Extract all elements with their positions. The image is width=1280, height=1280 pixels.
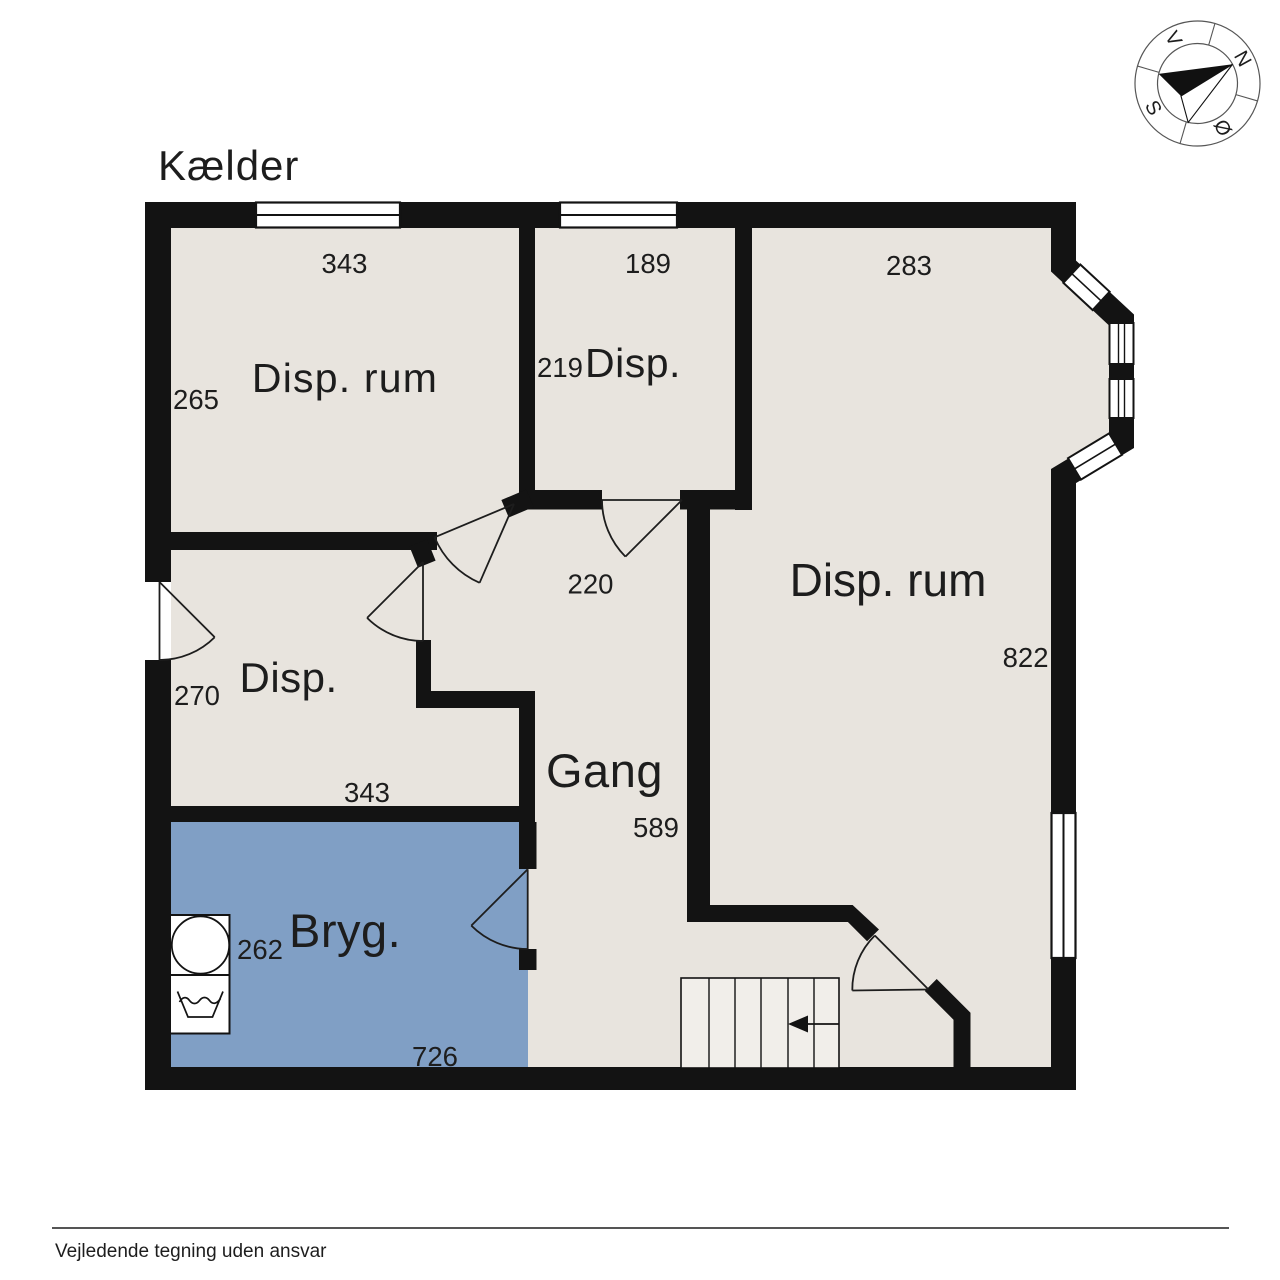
- svg-text:262: 262: [237, 934, 283, 965]
- svg-text:Disp. rum: Disp. rum: [790, 554, 987, 606]
- svg-text:219: 219: [537, 352, 583, 383]
- svg-text:270: 270: [174, 680, 220, 711]
- svg-text:726: 726: [412, 1041, 458, 1072]
- svg-text:Disp. rum: Disp. rum: [252, 355, 438, 401]
- svg-text:283: 283: [886, 250, 932, 281]
- svg-text:Disp.: Disp.: [240, 654, 338, 701]
- svg-text:343: 343: [344, 777, 390, 808]
- svg-text:Kælder: Kælder: [158, 142, 299, 189]
- svg-text:220: 220: [568, 569, 614, 600]
- svg-text:Vejledende tegning uden ansvar: Vejledende tegning uden ansvar: [55, 1241, 327, 1262]
- svg-text:Disp.: Disp.: [585, 340, 681, 386]
- svg-text:Bryg.: Bryg.: [289, 904, 401, 957]
- svg-text:Gang: Gang: [546, 744, 663, 797]
- svg-text:343: 343: [322, 248, 368, 279]
- svg-text:189: 189: [625, 248, 671, 279]
- svg-text:589: 589: [633, 812, 679, 843]
- svg-text:265: 265: [173, 384, 219, 415]
- svg-text:822: 822: [1003, 642, 1049, 673]
